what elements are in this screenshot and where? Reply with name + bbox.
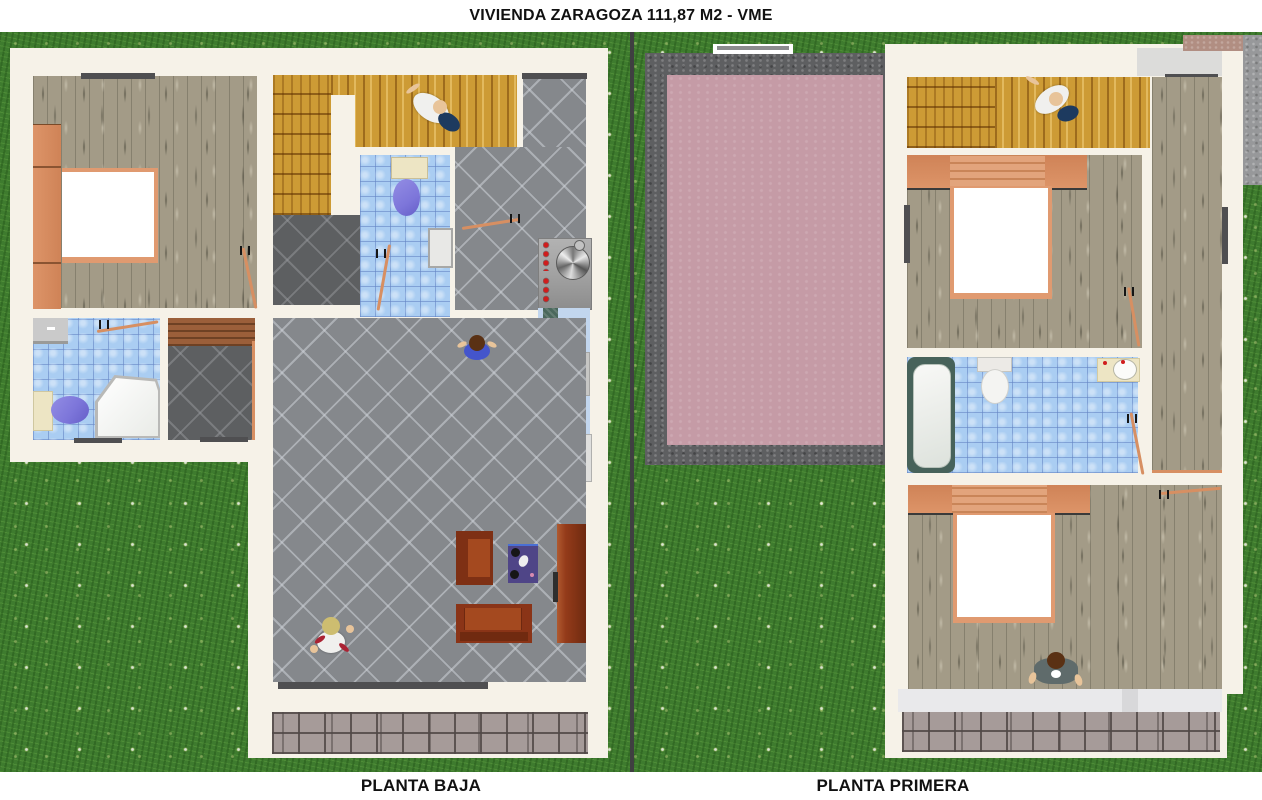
hall-tiled-floor (273, 215, 360, 305)
washer-detail (47, 327, 55, 330)
window (200, 437, 248, 442)
toilet (51, 396, 89, 424)
window (717, 46, 789, 50)
toilet (393, 179, 420, 216)
window (74, 438, 122, 443)
extractor-fan (556, 246, 590, 280)
footer-bar: PLANTA BAJA PLANTA PRIMERA (0, 772, 1262, 800)
door-handle (1159, 490, 1169, 499)
door-handle (510, 214, 520, 223)
window (904, 205, 910, 263)
upper-landing (1137, 48, 1222, 76)
wardrobe-divider (33, 262, 61, 264)
sink-vanity (391, 157, 428, 179)
door-handle (1127, 414, 1137, 423)
floorplan-image: VIVIENDA ZARAGOZA 111,87 M2 - VME (0, 0, 1262, 800)
burner (574, 240, 585, 251)
wardrobe (33, 124, 61, 309)
desk-chair (553, 572, 558, 602)
armchair-seat (468, 539, 490, 577)
wardrobe-middle (952, 485, 1047, 513)
window (1222, 207, 1228, 264)
title-bar: VIVIENDA ZARAGOZA 111,87 M2 - VME (0, 0, 1262, 32)
entry-cabinet (168, 318, 255, 346)
staircase (273, 75, 331, 215)
bed (953, 513, 1055, 623)
faucet-dot (1121, 360, 1125, 364)
rug-item (511, 548, 520, 557)
door-handle (99, 320, 109, 329)
staircase (907, 77, 995, 148)
stove-knobs (543, 277, 550, 304)
terrace-paving (902, 712, 1220, 752)
sofa-cushions (464, 608, 522, 630)
desk (557, 524, 586, 643)
stair-wall (331, 95, 355, 215)
entry-floor (168, 346, 255, 440)
door-handle (1124, 287, 1134, 296)
label-planta-baja: PLANTA BAJA (221, 776, 621, 796)
rug-item (530, 573, 534, 577)
window (278, 682, 488, 689)
room-living-floor (273, 318, 586, 682)
plan-divider-line (630, 32, 634, 772)
room-kitchen-floor (523, 75, 586, 147)
bathtub-inner (913, 364, 951, 468)
window (81, 73, 155, 79)
window (522, 73, 587, 79)
bed (62, 168, 158, 263)
sink-basin (1113, 359, 1137, 380)
page-title: VIVIENDA ZARAGOZA 111,87 M2 - VME (0, 7, 1242, 25)
door-handle (240, 246, 250, 255)
rug-item (510, 570, 519, 579)
door-handle (376, 249, 386, 258)
corridor-floor (1152, 77, 1222, 473)
terrace-paving (272, 712, 588, 754)
washing-machine (33, 318, 68, 344)
sofa-backrest (460, 632, 528, 641)
bed (950, 186, 1052, 299)
balcony-floor (898, 689, 1222, 712)
roof-gravel-strip (1243, 35, 1262, 185)
stove-knobs (543, 241, 550, 271)
toilet (981, 369, 1009, 404)
roof-terrace (667, 75, 883, 445)
faucet-dot (1103, 361, 1107, 365)
door-leaf (252, 341, 255, 440)
toilet-cistern (33, 391, 53, 431)
wardrobe-divider (33, 166, 61, 168)
wardrobe-middle (950, 155, 1045, 188)
shower-unit (428, 228, 453, 268)
threshold (1152, 470, 1222, 473)
balcony-step (1122, 689, 1138, 712)
label-planta-primera: PLANTA PRIMERA (693, 776, 1093, 796)
